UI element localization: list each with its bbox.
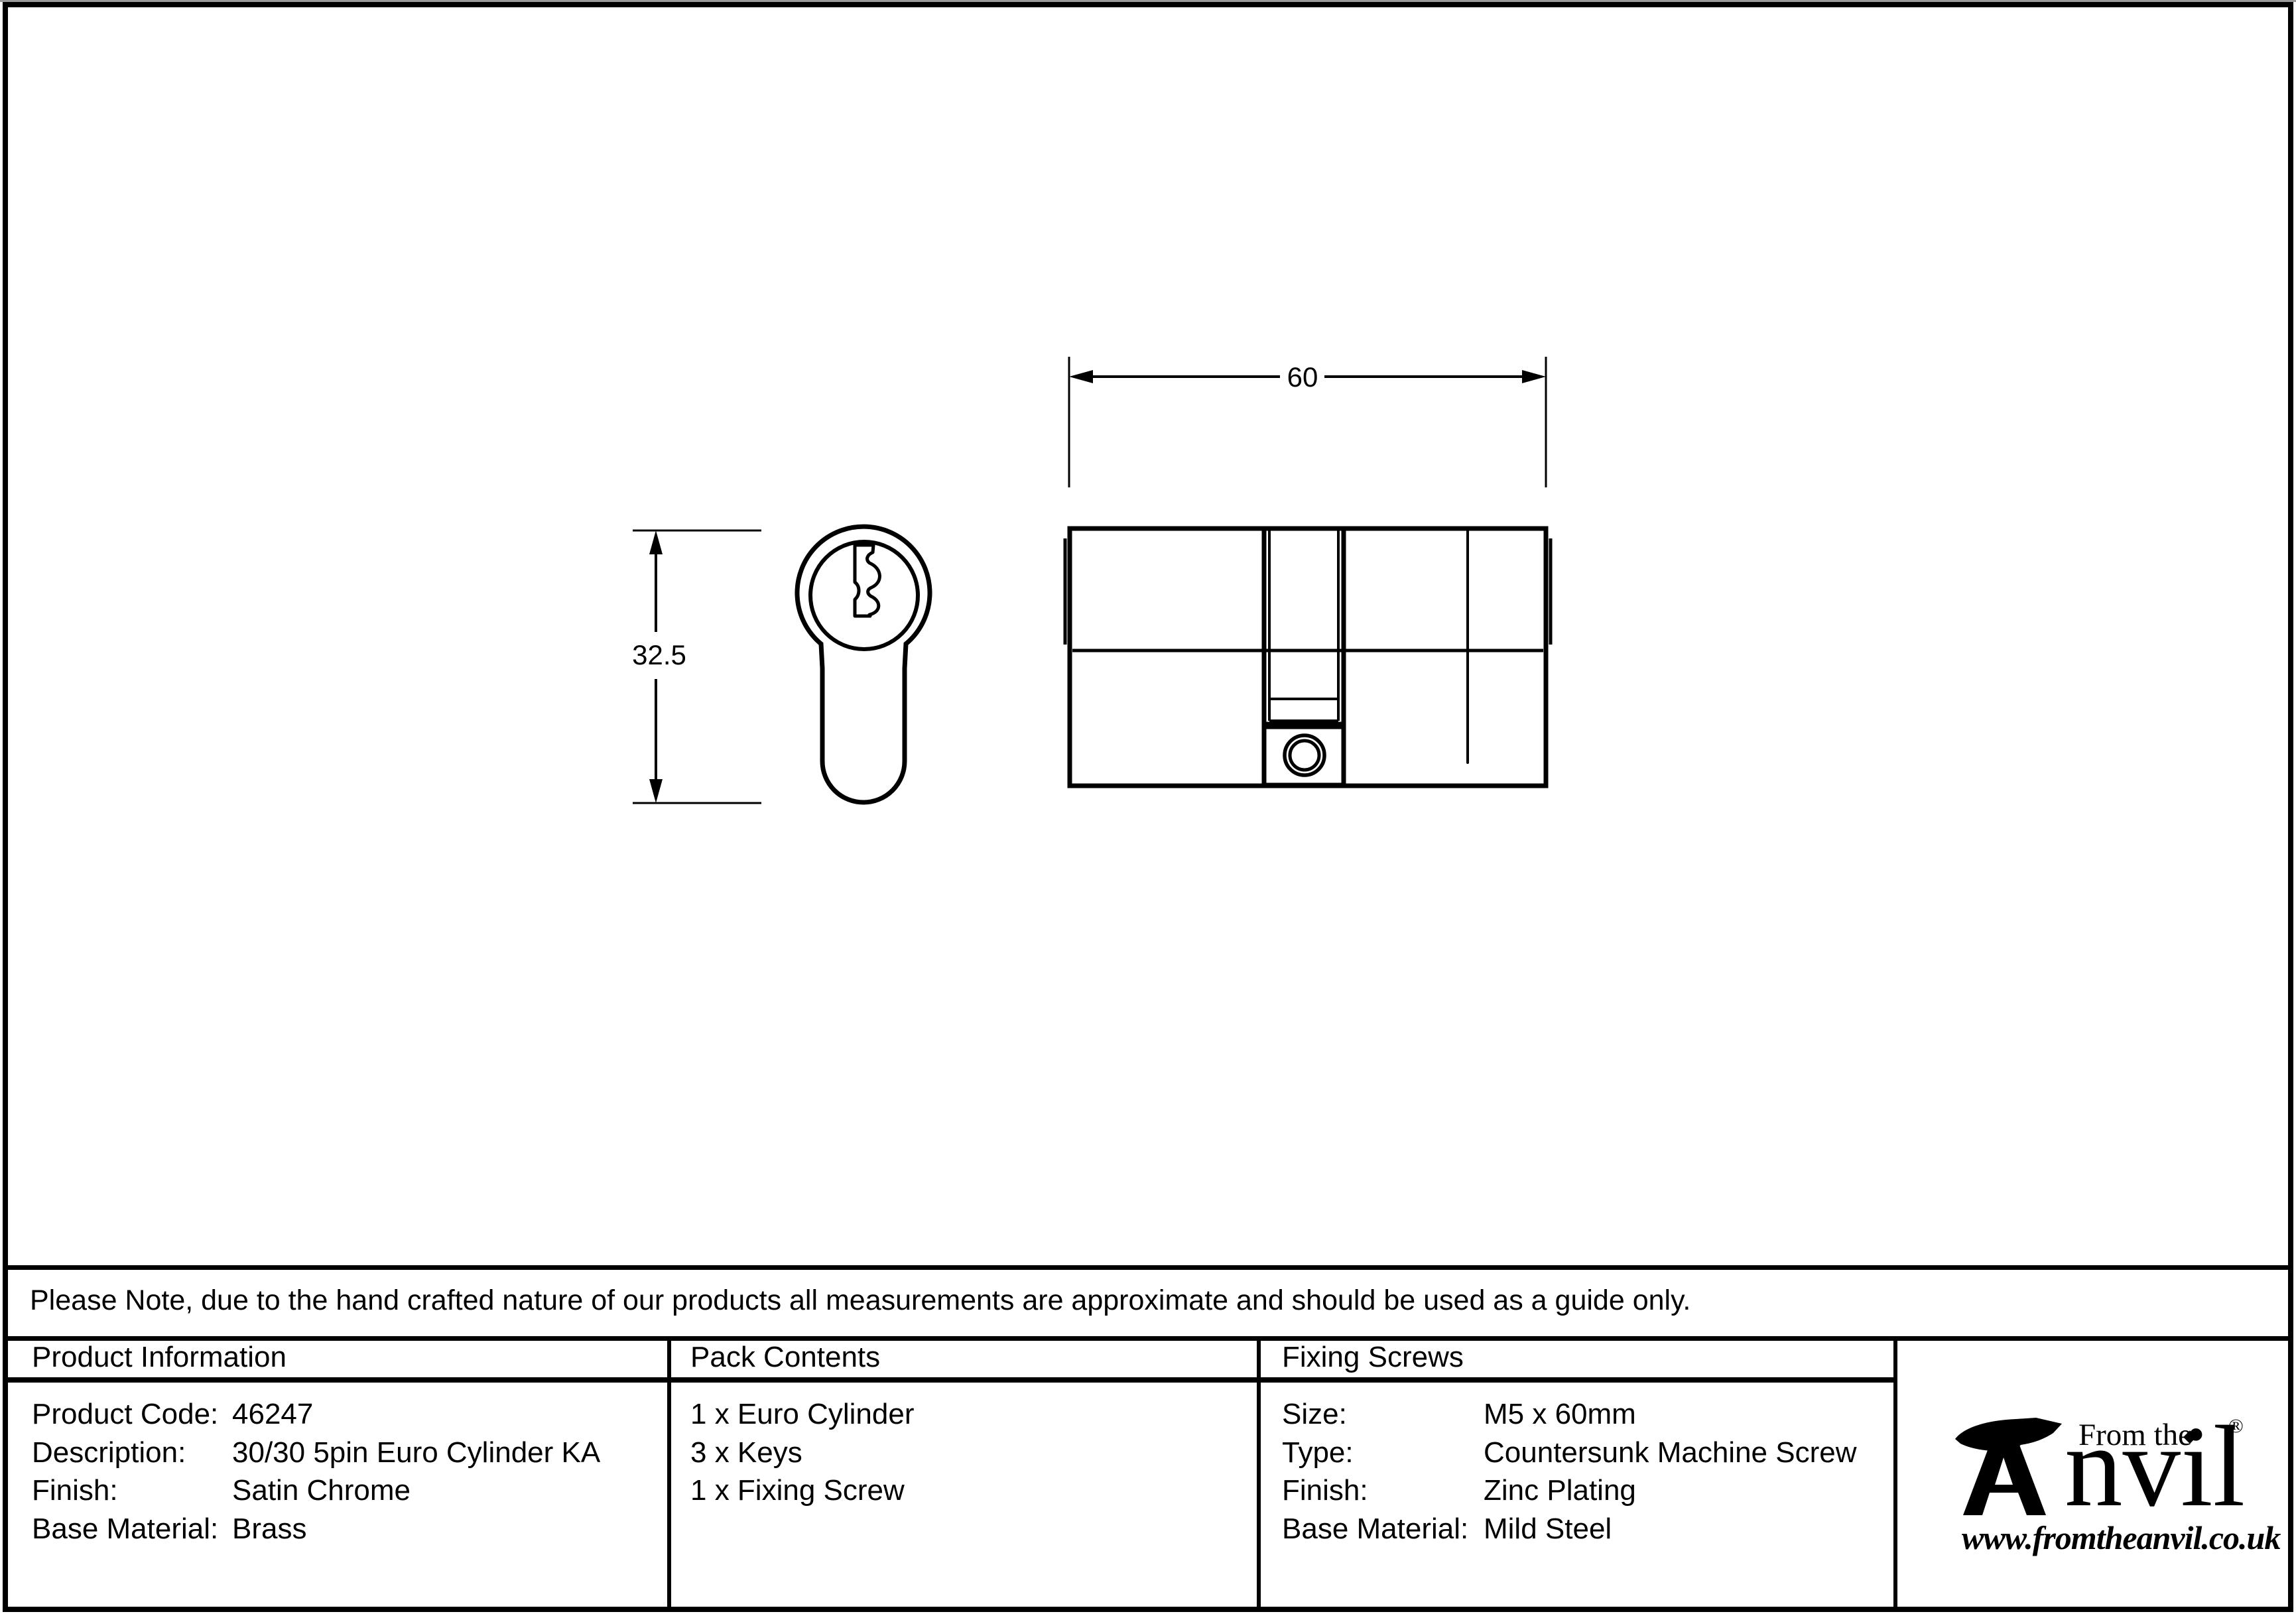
pack-item: 1 x Euro Cylinder [690,1396,914,1433]
logo-website-url: www.fromtheanvil.co.uk [1962,1518,2254,1558]
cylinder-front-view [797,527,930,802]
cylinder-side-view [1065,528,1551,786]
technical-drawing: 60 32.5 [0,0,2296,1267]
header-pack-contents: Pack Contents [690,1339,880,1376]
row-value: M5 x 60mm [1484,1396,1636,1433]
row-value: Countersunk Machine Screw [1484,1434,1856,1471]
note-top-border [3,1265,2293,1270]
row-label: Finish: [32,1472,118,1509]
row-label: Type: [1282,1434,1354,1471]
pack-item: 1 x Fixing Screw [690,1472,905,1509]
arrow-right-icon [1522,370,1546,383]
row-value: Mild Steel [1484,1511,1612,1548]
row-value: Satin Chrome [232,1472,411,1509]
row-label: Base Material: [32,1511,218,1548]
spec-sheet-page: 60 32.5 [0,0,2296,1614]
pack-item: 3 x Keys [690,1434,802,1471]
row-value: 30/30 5pin Euro Cylinder KA [232,1434,600,1471]
registered-trademark-icon: ® [2228,1416,2244,1436]
logo-brand-text: nvil [2065,1408,2245,1524]
measurement-note: Please Note, due to the hand crafted nat… [30,1282,1690,1319]
dim-height-label: 32.5 [632,639,686,670]
width-dimension: 60 [1069,357,1546,487]
arrow-up-icon [649,530,663,554]
arrow-left-icon [1069,370,1093,383]
row-value: Zinc Plating [1484,1472,1636,1509]
dim-width-label: 60 [1287,361,1318,393]
table-divider-3 [1893,1336,1897,1609]
table-divider-1 [667,1336,671,1609]
row-value: Brass [232,1511,306,1548]
table-top-border [3,1336,2293,1341]
row-label: Product Code: [32,1396,218,1433]
table-divider-2 [1257,1336,1261,1609]
table-header-divider [5,1377,1895,1383]
row-label: Size: [1282,1396,1347,1433]
header-product-information: Product Information [32,1339,287,1376]
row-label: Finish: [1282,1472,1368,1509]
anvil-icon [1955,1418,2068,1517]
row-label: Description: [32,1434,186,1471]
height-dimension: 32.5 [632,530,761,803]
header-fixing-screws: Fixing Screws [1282,1339,1464,1376]
row-label: Base Material: [1282,1511,1468,1548]
arrow-down-icon [649,779,663,803]
row-value: 46247 [232,1396,313,1433]
